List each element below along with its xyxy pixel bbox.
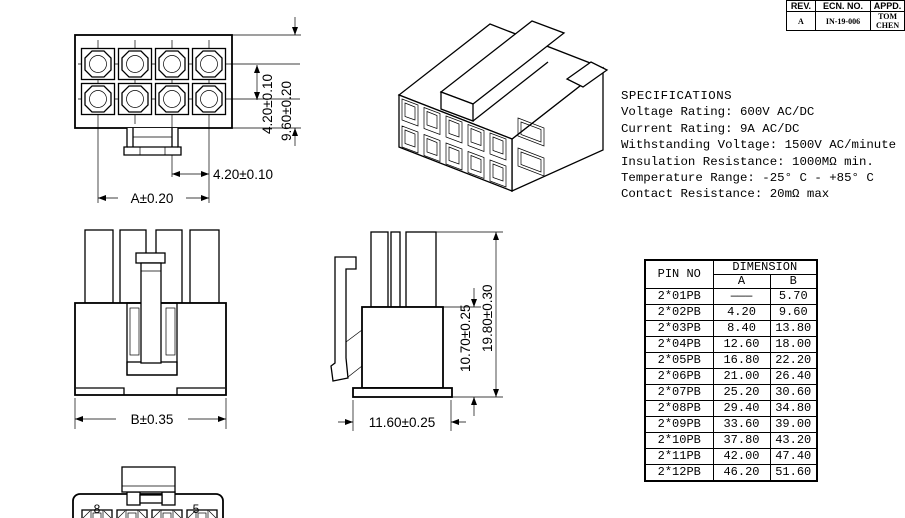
appd-value: TOM CHEN — [871, 12, 905, 31]
pin-cell: 2*03PB — [645, 321, 713, 337]
pin-cell: 2*06PB — [645, 369, 713, 385]
pin-cell: 2*09PB — [645, 417, 713, 433]
dim-label-total-height: 19.80±0.30 — [480, 285, 495, 352]
pin-number-left: 8 — [94, 502, 101, 516]
dim-a-cell: 29.40 — [713, 401, 770, 417]
spec-line-contact: Contact Resistance: 20mΩ max — [621, 186, 896, 202]
connector-datasheet-drawing: 4.20±0.10 9.60±0.20 4.20±0.10 A±0.20 — [0, 0, 905, 518]
dim-b-cell: 13.80 — [770, 321, 817, 337]
dim-a-cell: ——— — [713, 289, 770, 305]
dim-b-cell: 47.40 — [770, 449, 817, 465]
revision-header-row: REV. ECN. NO. APPD. — [787, 1, 905, 12]
pin-cell: 2*04PB — [645, 337, 713, 353]
dim-b-cell: 18.00 — [770, 337, 817, 353]
table-row: 2*08PB29.4034.80 — [645, 401, 817, 417]
dim-a-cell: 12.60 — [713, 337, 770, 353]
specifications-title: SPECIFICATIONS — [621, 88, 896, 104]
dimension-header: DIMENSION — [713, 260, 817, 275]
pin-cell: 2*11PB — [645, 449, 713, 465]
pin-cell: 2*10PB — [645, 433, 713, 449]
table-row: 2*09PB33.6039.00 — [645, 417, 817, 433]
dim-a-cell: 21.00 — [713, 369, 770, 385]
pin-dimension-table: PIN NO DIMENSION A B 2*01PB———5.70 2*02P… — [644, 259, 818, 482]
spec-line-temperature: Temperature Range: -25° C - +85° C — [621, 170, 896, 186]
dim-a-cell: 33.60 — [713, 417, 770, 433]
pin-cell: 2*12PB — [645, 465, 713, 482]
side-view-drawing: 10.70±0.25 19.80±0.30 11.60±0.25 — [331, 232, 503, 431]
table-row: 2*11PB42.0047.40 — [645, 449, 817, 465]
table-row: 2*01PB———5.70 — [645, 289, 817, 305]
isometric-view-drawing — [399, 21, 607, 191]
dim-a-cell: 46.20 — [713, 465, 770, 482]
table-row: 2*06PB21.0026.40 — [645, 369, 817, 385]
front-view-latch — [124, 128, 181, 155]
dim-b-cell: 9.60 — [770, 305, 817, 321]
pin-cell: 2*08PB — [645, 401, 713, 417]
dim-a-cell: 16.80 — [713, 353, 770, 369]
table-row: 2*10PB37.8043.20 — [645, 433, 817, 449]
dim-label-height: 9.60±0.20 — [279, 81, 294, 141]
dim-a-cell: 8.40 — [713, 321, 770, 337]
rear-view-latch — [136, 253, 165, 263]
col-a-header: A — [713, 275, 770, 289]
dim-label-body-height: 10.70±0.25 — [458, 305, 473, 372]
front-view-drawing: 4.20±0.10 9.60±0.20 4.20±0.10 A±0.20 — [75, 17, 301, 206]
dim-a-cell: 4.20 — [713, 305, 770, 321]
dim-b-cell: 30.60 — [770, 385, 817, 401]
spec-line-current: Current Rating: 9A AC/DC — [621, 121, 896, 137]
spec-line-withstanding: Withstanding Voltage: 1500V AC/minute — [621, 137, 896, 153]
table-header-row: PIN NO DIMENSION — [645, 260, 817, 275]
bottom-view-drawing: 8 5 — [73, 467, 223, 518]
dim-b-cell: 26.40 — [770, 369, 817, 385]
dim-b-cell: 5.70 — [770, 289, 817, 305]
dim-label-row-pitch: 4.20±0.10 — [260, 74, 275, 134]
side-view-body — [362, 307, 443, 388]
dim-a-cell: 37.80 — [713, 433, 770, 449]
table-row: 2*12PB46.2051.60 — [645, 465, 817, 482]
pin-cell: 2*05PB — [645, 353, 713, 369]
ecn-no-header: ECN. NO. — [815, 1, 870, 12]
pin-no-header: PIN NO — [645, 260, 713, 289]
pin-number-right: 5 — [193, 502, 200, 516]
rear-view-drawing: B±0.35 — [75, 230, 226, 429]
dim-label-width-a: A±0.20 — [131, 191, 174, 206]
side-view-latch — [331, 257, 356, 381]
table-row: 2*03PB8.4013.80 — [645, 321, 817, 337]
dim-label-width-b: B±0.35 — [131, 412, 174, 427]
dim-b-cell: 51.60 — [770, 465, 817, 482]
spec-line-insulation: Insulation Resistance: 1000MΩ min. — [621, 154, 896, 170]
dim-b-cell: 39.00 — [770, 417, 817, 433]
dim-b-cell: 43.20 — [770, 433, 817, 449]
dim-a-cell: 42.00 — [713, 449, 770, 465]
table-row: 2*04PB12.6018.00 — [645, 337, 817, 353]
revision-data-row: A IN-19-006 TOM CHEN — [787, 12, 905, 31]
table-row: 2*07PB25.2030.60 — [645, 385, 817, 401]
pin-cell: 2*07PB — [645, 385, 713, 401]
spec-line-voltage: Voltage Rating: 600V AC/DC — [621, 104, 896, 120]
pin-cell: 2*02PB — [645, 305, 713, 321]
appd-header: APPD. — [871, 1, 905, 12]
revision-table: REV. ECN. NO. APPD. A IN-19-006 TOM CHEN — [786, 0, 905, 31]
table-row: 2*05PB16.8022.20 — [645, 353, 817, 369]
dim-label-col-pitch: 4.20±0.10 — [213, 167, 273, 182]
ecn-no-value: IN-19-006 — [815, 12, 870, 31]
col-b-header: B — [770, 275, 817, 289]
table-row: 2*02PB4.209.60 — [645, 305, 817, 321]
dim-b-cell: 34.80 — [770, 401, 817, 417]
bottom-view-latch — [122, 467, 175, 492]
rev-header: REV. — [787, 1, 816, 12]
dim-b-cell: 22.20 — [770, 353, 817, 369]
specifications-block: SPECIFICATIONS Voltage Rating: 600V AC/D… — [621, 88, 896, 203]
dim-a-cell: 25.20 — [713, 385, 770, 401]
rev-value: A — [787, 12, 816, 31]
pin-cell: 2*01PB — [645, 289, 713, 305]
dim-label-depth: 11.60±0.25 — [369, 415, 435, 430]
